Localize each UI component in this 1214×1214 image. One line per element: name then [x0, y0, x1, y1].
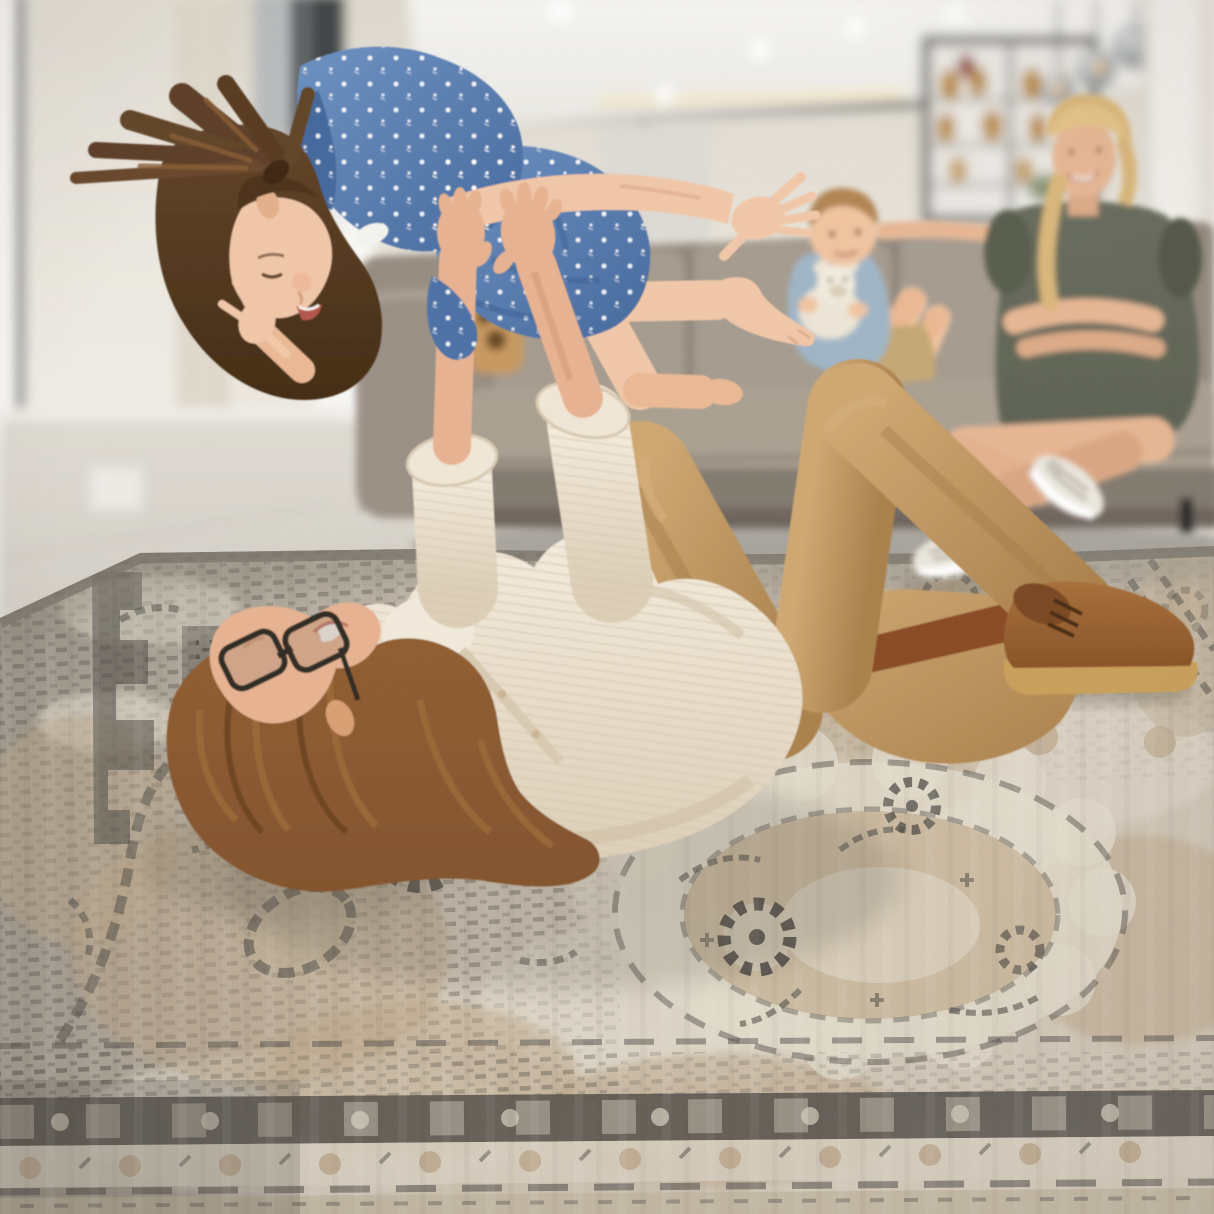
photo-grain — [0, 0, 1214, 1214]
photo-canvas — [0, 0, 1214, 1214]
photo-family-living-room-rug — [0, 0, 1214, 1214]
